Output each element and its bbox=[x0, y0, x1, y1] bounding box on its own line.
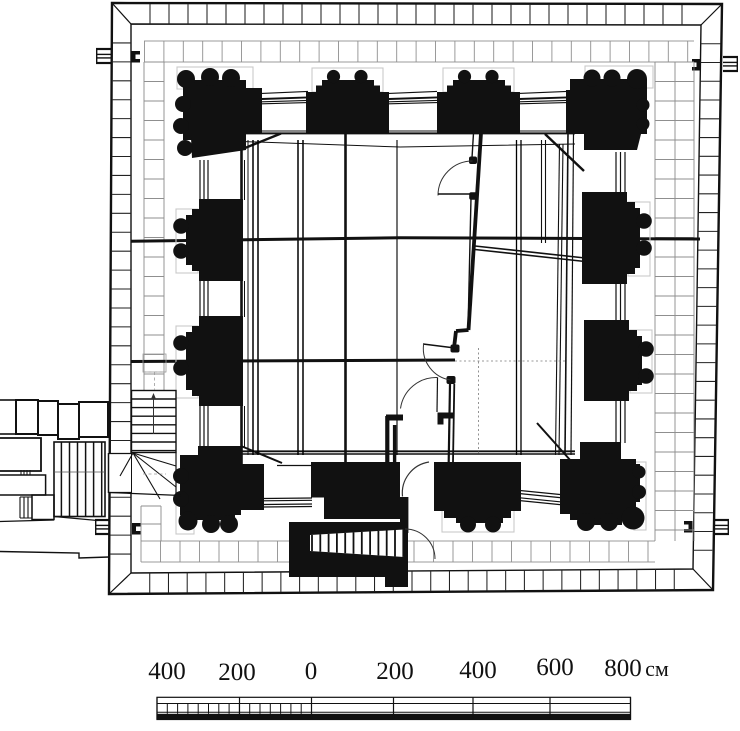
svg-text:600: 600 bbox=[536, 654, 574, 681]
svg-text:400: 400 bbox=[148, 658, 186, 685]
svg-text:0: 0 bbox=[305, 658, 318, 685]
svg-text:200: 200 bbox=[376, 658, 414, 685]
svg-text:200: 200 bbox=[218, 659, 256, 686]
svg-text:см: см bbox=[645, 656, 669, 681]
svg-text:800: 800 bbox=[604, 655, 642, 682]
svg-text:400: 400 bbox=[459, 657, 497, 684]
